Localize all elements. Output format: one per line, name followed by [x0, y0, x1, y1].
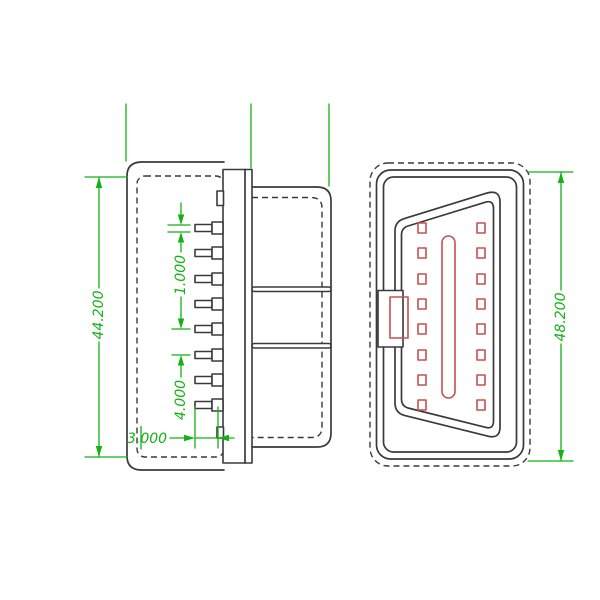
- dimension-arrow: [178, 215, 184, 226]
- dimension-arrow: [178, 319, 184, 330]
- shell-rib: [252, 287, 331, 292]
- dimension-text-pin-pitch: 4.000: [173, 380, 189, 420]
- connector-plate: [223, 170, 252, 464]
- dimension-arrow: [178, 355, 184, 366]
- pin-contact: [477, 248, 485, 258]
- pin: [195, 250, 212, 257]
- pin-contact: [477, 324, 485, 334]
- dimension-arrow: [184, 435, 195, 441]
- pin-contact: [477, 350, 485, 360]
- pin: [212, 323, 223, 335]
- pin-contact: [418, 400, 426, 410]
- front-contacts: [418, 223, 485, 410]
- pin-contact: [418, 274, 426, 284]
- pin: [212, 374, 223, 386]
- dimension-arrow: [558, 172, 564, 183]
- pin: [195, 276, 212, 283]
- center-slot: [442, 236, 455, 398]
- front-view-dimensions: 48.200: [528, 172, 573, 461]
- shell-outline: [252, 187, 331, 447]
- locator-tab-top: [217, 191, 224, 206]
- pin-contact: [418, 299, 426, 309]
- dimension-text-pin-length: 3.000: [127, 431, 167, 447]
- dimension-arrow: [178, 232, 184, 243]
- dimension-arrow: [96, 177, 102, 188]
- pin-contact: [477, 274, 485, 284]
- pin-contact: [477, 375, 485, 385]
- pin-contact: [477, 400, 485, 410]
- drawing-canvas: 44.200 1.000 4.000 3.000: [0, 0, 600, 600]
- dimension-text-body-height: 44.200: [91, 290, 107, 339]
- dimension-text-pin-thickness: 1.000: [173, 255, 189, 295]
- pin-contact: [418, 324, 426, 334]
- side-pins: [195, 222, 223, 411]
- pin-contact: [418, 223, 426, 233]
- pin-contact: [418, 248, 426, 258]
- dimension-text-face-height: 48.200: [553, 292, 569, 341]
- dimension-arrow: [558, 450, 564, 461]
- pin-contact: [418, 350, 426, 360]
- pin: [212, 273, 223, 285]
- shell-hidden-edge: [252, 198, 322, 438]
- pin: [195, 402, 212, 409]
- pin: [195, 377, 212, 384]
- pin: [212, 298, 223, 310]
- shell-rib: [252, 344, 331, 349]
- technical-drawing: 44.200 1.000 4.000 3.000: [0, 0, 600, 600]
- pin: [212, 222, 223, 234]
- pin: [212, 247, 223, 259]
- body-outline: [127, 162, 224, 470]
- pin: [195, 326, 212, 333]
- pin: [195, 352, 212, 359]
- pin: [195, 301, 212, 308]
- dimension-arrow: [96, 446, 102, 457]
- pin-contact: [477, 223, 485, 233]
- front-view: [370, 163, 530, 466]
- pin-contact: [477, 299, 485, 309]
- pin: [195, 225, 212, 232]
- pin-contact: [418, 375, 426, 385]
- pin: [212, 349, 223, 361]
- side-view: [127, 162, 331, 470]
